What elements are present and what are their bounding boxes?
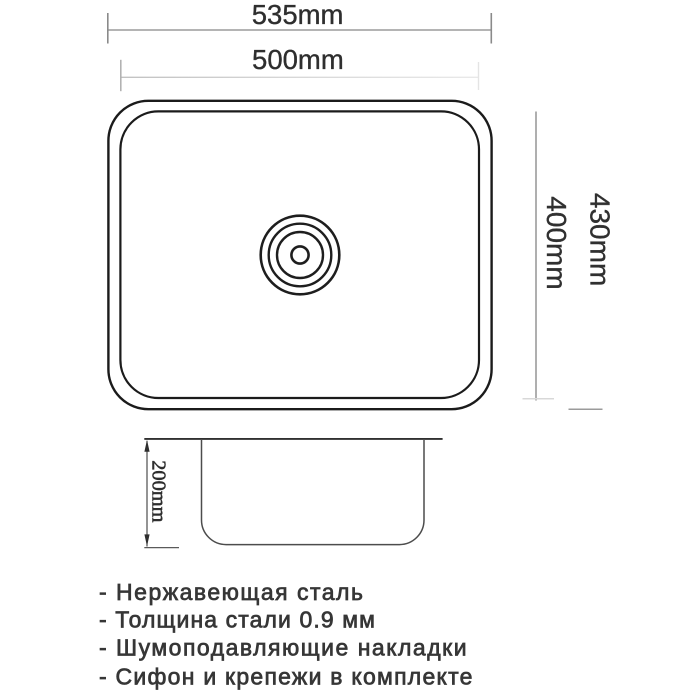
svg-text:400mm: 400mm	[541, 196, 572, 289]
svg-text:535mm: 535mm	[252, 0, 344, 30]
svg-text:- Толщина стали 0.9 мм: - Толщина стали 0.9 мм	[99, 607, 376, 633]
svg-text:- Нержавеющая сталь: - Нержавеющая сталь	[99, 579, 364, 605]
svg-text:430mm: 430mm	[584, 193, 615, 286]
svg-text:- Шумоподавляющие накладки: - Шумоподавляющие накладки	[99, 635, 468, 661]
svg-text:- Сифон и крепежи в комплекте: - Сифон и крепежи в комплекте	[99, 664, 474, 690]
svg-text:500mm: 500mm	[252, 44, 344, 75]
svg-text:200mm: 200mm	[148, 460, 170, 522]
